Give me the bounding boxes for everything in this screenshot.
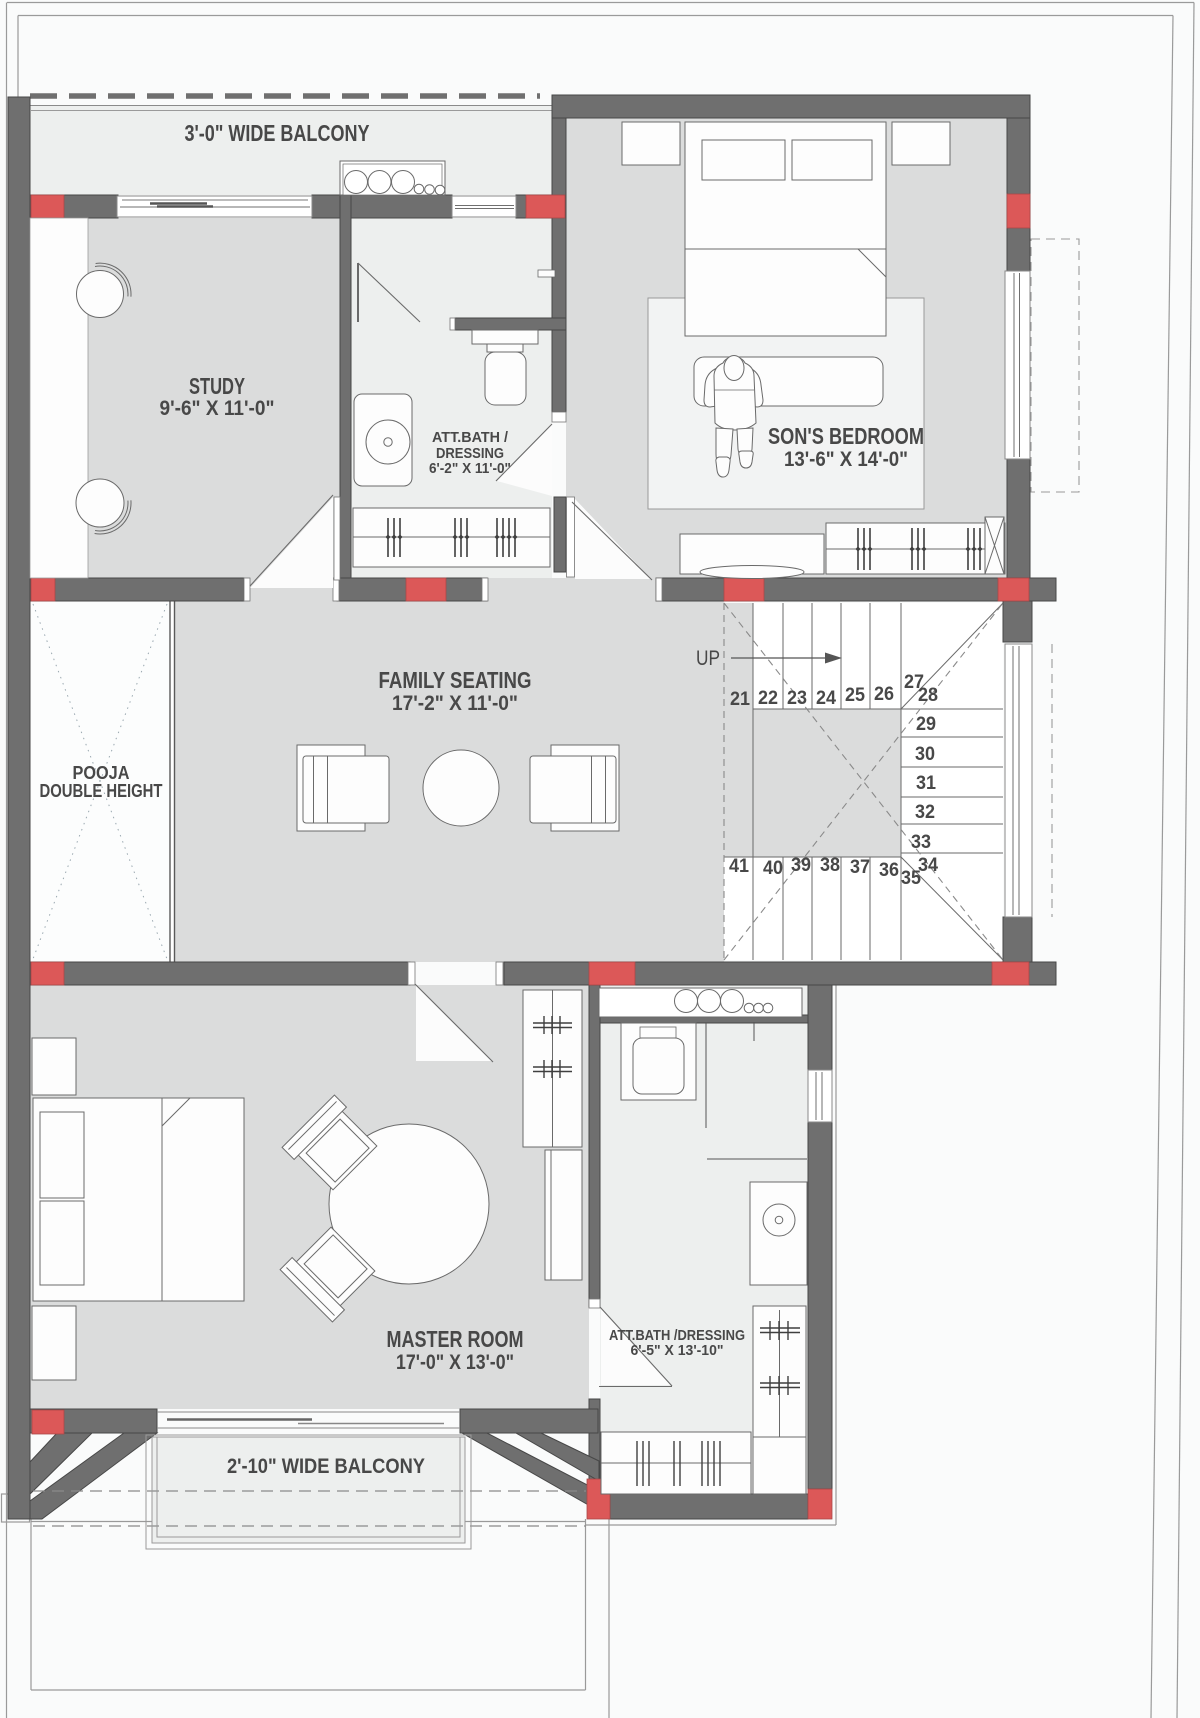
svg-text:28: 28 <box>918 685 938 706</box>
svg-text:41: 41 <box>729 856 749 877</box>
svg-text:13'-6" X 14'-0": 13'-6" X 14'-0" <box>784 447 908 471</box>
svg-text:9'-6" X 11'-0": 9'-6" X 11'-0" <box>160 397 275 420</box>
svg-text:17'-0" X 13'-0": 17'-0" X 13'-0" <box>396 1350 514 1374</box>
svg-text:32: 32 <box>915 802 935 823</box>
svg-text:25: 25 <box>845 685 865 706</box>
svg-text:ATT.BATH /: ATT.BATH / <box>432 429 509 446</box>
svg-text:37: 37 <box>850 857 870 878</box>
svg-text:35: 35 <box>901 868 921 889</box>
svg-text:38: 38 <box>820 855 840 876</box>
svg-text:ATT.BATH /DRESSING: ATT.BATH /DRESSING <box>609 1327 745 1344</box>
svg-text:DOUBLE HEIGHT: DOUBLE HEIGHT <box>40 781 163 801</box>
svg-text:30: 30 <box>915 744 935 765</box>
svg-text:6'-2" X 11'-0": 6'-2" X 11'-0" <box>429 461 511 477</box>
svg-text:33: 33 <box>911 832 931 853</box>
svg-text:39: 39 <box>791 855 811 876</box>
svg-text:STUDY: STUDY <box>189 373 245 399</box>
svg-text:34: 34 <box>918 855 938 876</box>
svg-text:22: 22 <box>758 688 778 709</box>
svg-text:6'-5" X 13'-10": 6'-5" X 13'-10" <box>631 1343 724 1359</box>
svg-text:MASTER ROOM: MASTER ROOM <box>387 1326 524 1352</box>
svg-text:POOJA: POOJA <box>73 763 130 783</box>
svg-text:40: 40 <box>763 858 783 879</box>
svg-text:31: 31 <box>916 773 936 794</box>
svg-text:24: 24 <box>816 688 836 709</box>
svg-text:UP: UP <box>696 647 720 670</box>
svg-text:29: 29 <box>916 714 936 735</box>
svg-text:21: 21 <box>730 689 750 710</box>
svg-text:26: 26 <box>874 684 894 705</box>
svg-text:2'-10" WIDE BALCONY: 2'-10" WIDE BALCONY <box>227 1454 425 1478</box>
svg-text:23: 23 <box>787 688 807 709</box>
svg-text:3'-0" WIDE BALCONY: 3'-0" WIDE BALCONY <box>185 120 370 146</box>
svg-text:FAMILY SEATING: FAMILY SEATING <box>379 667 532 693</box>
svg-text:36: 36 <box>879 860 899 881</box>
svg-text:SON'S BEDROOM: SON'S BEDROOM <box>768 423 924 449</box>
svg-text:DRESSING: DRESSING <box>436 445 504 462</box>
svg-text:17'-2" X 11'-0": 17'-2" X 11'-0" <box>392 691 518 715</box>
